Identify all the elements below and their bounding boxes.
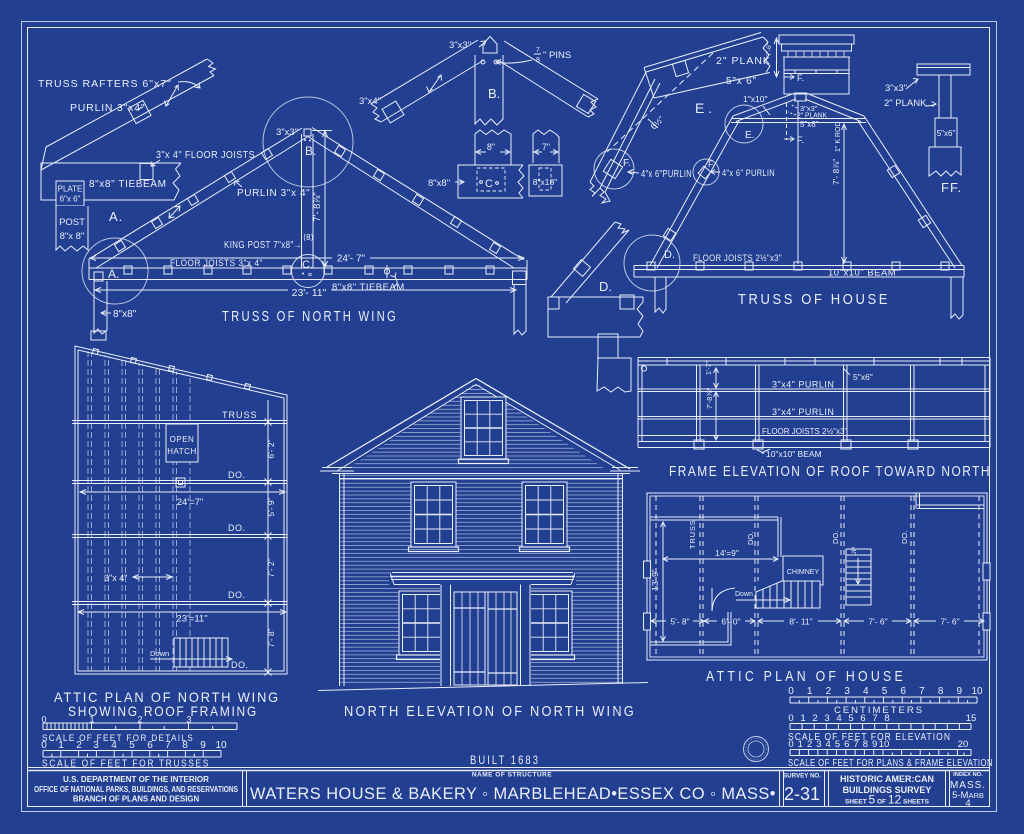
svg-text:4: 4	[836, 713, 841, 724]
svg-text:8"x8" TIEBEAM: 8"x8" TIEBEAM	[89, 179, 167, 190]
svg-text:2" PLANK: 2" PLANK	[884, 98, 927, 109]
svg-text:NAME OF STRUCTURE: NAME OF STRUCTURE	[472, 772, 553, 779]
svg-text:ATTIC PLAN OF HOUSE: ATTIC PLAN OF HOUSE	[706, 668, 906, 685]
svg-text:DO.: DO.	[746, 532, 755, 545]
svg-text:B.: B.	[488, 86, 500, 101]
svg-text:7": 7"	[542, 142, 550, 152]
svg-text:8: 8	[938, 686, 944, 697]
svg-text:6'- 2": 6'- 2"	[266, 439, 276, 458]
svg-text:8: 8	[863, 739, 868, 750]
svg-text:8: 8	[884, 713, 889, 724]
svg-text:3"x3": 3"x3"	[449, 40, 471, 51]
svg-text:3"x4": 3"x4"	[359, 96, 381, 107]
svg-text:1: 1	[800, 713, 805, 724]
svg-text:7'-6": 7'-6"	[766, 42, 773, 56]
svg-text:6"x 6": 6"x 6"	[60, 195, 81, 204]
svg-text:SURVEY NO.: SURVEY NO.	[783, 773, 821, 780]
svg-text:2: 2	[826, 686, 832, 697]
svg-text:8'- 11": 8'- 11"	[789, 617, 812, 627]
svg-text:6: 6	[900, 686, 906, 697]
svg-text:TRUSS: TRUSS	[222, 410, 258, 420]
svg-text:10: 10	[971, 686, 983, 697]
svg-text:Down: Down	[735, 591, 753, 598]
svg-text:1: 1	[798, 739, 803, 750]
svg-text:POST: POST	[59, 217, 85, 228]
svg-text:0: 0	[41, 740, 47, 751]
svg-text:Down: Down	[150, 649, 169, 658]
svg-text:8"x 8": 8"x 8"	[60, 231, 85, 242]
svg-text:D.: D.	[599, 279, 612, 294]
svg-text:4: 4	[826, 739, 831, 750]
svg-text:3: 3	[824, 713, 829, 724]
svg-text:24'- 7": 24'- 7"	[337, 254, 366, 265]
svg-text:PLATE: PLATE	[58, 185, 83, 194]
svg-text:5'- 9": 5'- 9"	[266, 497, 276, 516]
svg-text:FLOOR JOISTS 3"x 4": FLOOR JOISTS 3"x 4"	[170, 258, 263, 269]
svg-text:F.: F.	[797, 135, 804, 145]
svg-text:6'- 0": 6'- 0"	[721, 617, 740, 627]
svg-text:C.: C.	[302, 259, 313, 271]
svg-text:TRUSS: TRUSS	[688, 520, 697, 549]
svg-text:HISTORIC AMER:CAN: HISTORIC AMER:CAN	[840, 774, 934, 784]
svg-text:0: 0	[788, 713, 793, 724]
svg-text:TRUSS OF NORTH WING: TRUSS OF NORTH WING	[222, 308, 398, 325]
svg-text:24'=7": 24'=7"	[177, 497, 204, 508]
svg-text:7'- 8⅞": 7'- 8⅞"	[831, 159, 841, 185]
svg-text:OPEN: OPEN	[170, 435, 195, 444]
svg-text:7'-8⅞": 7'-8⅞"	[705, 387, 714, 409]
svg-text:CHIMNEY: CHIMNEY	[787, 569, 820, 576]
svg-text:SHOWING ROOF FRAMING: SHOWING ROOF FRAMING	[68, 703, 258, 719]
svg-text:F.: F.	[797, 73, 804, 83]
svg-text:⟨8⟩: ⟨8⟩	[303, 233, 314, 242]
svg-text:4"x 6"PURLIN: 4"x 6"PURLIN	[641, 169, 692, 180]
svg-text:INDEX NO.: INDEX NO.	[953, 772, 983, 778]
svg-text:5: 5	[848, 713, 853, 724]
svg-text:6: 6	[844, 739, 849, 750]
svg-text:DO.: DO.	[228, 470, 246, 480]
svg-text:NORTH ELEVATION OF NORTH W: NORTH ELEVATION OF NORTH WING	[344, 704, 636, 720]
svg-text:6: 6	[147, 740, 153, 751]
svg-text:C: C	[485, 178, 493, 190]
svg-text:D.: D.	[664, 249, 675, 261]
svg-text:20: 20	[958, 739, 969, 750]
svg-text:2" PLANK: 2" PLANK	[797, 113, 827, 120]
svg-text:8: 8	[182, 740, 188, 751]
svg-text:BRANCH OF PLANS AND DESIGN: BRANCH OF PLANS AND DESIGN	[73, 795, 200, 804]
svg-text:E.: E.	[745, 130, 754, 141]
svg-text:DO.: DO.	[900, 531, 909, 544]
svg-text:7: 7	[853, 739, 858, 750]
svg-text:2-31: 2-31	[784, 784, 820, 804]
svg-text:5"x6": 5"x6"	[937, 129, 956, 138]
svg-text:KING POST 7"x8"→: KING POST 7"x8"→	[224, 240, 302, 251]
svg-text:OFFICE OF NATIONAL PARKS, BUIL: OFFICE OF NATIONAL PARKS, BUILDINGS, AND…	[34, 785, 238, 794]
svg-text:DO.: DO.	[831, 531, 840, 544]
svg-text:4: 4	[965, 798, 970, 809]
svg-text:DO.: DO.	[228, 590, 246, 600]
svg-text:23'=11": 23'=11"	[176, 614, 207, 625]
svg-text:10: 10	[215, 740, 227, 751]
svg-text:10: 10	[879, 739, 890, 750]
svg-text:BUILT 1683: BUILT 1683	[470, 755, 540, 767]
svg-text:5: 5	[129, 740, 135, 751]
svg-text:4: 4	[863, 686, 869, 697]
svg-text:DO.: DO.	[231, 660, 249, 670]
svg-text:WATERS HOUSE & BAKERY ◦ MAR: WATERS HOUSE & BAKERY ◦ MARBLEHEAD•ESSEX…	[250, 785, 776, 803]
svg-text:DO.: DO.	[228, 523, 246, 533]
svg-text:TRUSS RAFTERS 6"x7": TRUSS RAFTERS 6"x7"	[38, 78, 172, 90]
svg-text:7: 7	[536, 47, 540, 54]
svg-text:3: 3	[93, 740, 99, 751]
svg-text:7'- 8⅞": 7'- 8⅞"	[312, 192, 323, 221]
svg-text:13'-9": 13'-9"	[650, 569, 660, 591]
svg-text:8"x8" TIEBEAM: 8"x8" TIEBEAM	[332, 282, 405, 293]
svg-text:FF.: FF.	[941, 180, 962, 195]
svg-text:FRAME ELEVATION OF ROOF TO: FRAME ELEVATION OF ROOF TOWARD NORTH	[669, 464, 991, 480]
svg-text:7: 7	[165, 740, 171, 751]
svg-text:U.S. DEPARTMENT OF THE INTERIO: U.S. DEPARTMENT OF THE INTERIOR	[63, 775, 209, 784]
svg-text:5: 5	[835, 739, 840, 750]
svg-text:3"x4" PURLIN: 3"x4" PURLIN	[772, 407, 834, 417]
svg-text:HATCH: HATCH	[167, 447, 196, 456]
svg-text:10"x10" BEAM: 10"x10" BEAM	[828, 268, 896, 279]
svg-text:3: 3	[816, 739, 821, 750]
svg-text:5"x6": 5"x6"	[853, 372, 873, 382]
svg-text:8"x8": 8"x8"	[428, 178, 450, 189]
svg-text:2: 2	[76, 740, 82, 751]
svg-text:15: 15	[966, 713, 977, 724]
svg-text:10"x10" BEAM: 10"x10" BEAM	[766, 449, 822, 459]
svg-text:8"x8": 8"x8"	[113, 309, 137, 320]
svg-text:14'=9": 14'=9"	[715, 548, 739, 558]
svg-text:0: 0	[41, 715, 46, 725]
svg-text:8: 8	[536, 57, 540, 64]
svg-text:1: 1	[807, 686, 813, 697]
svg-text:FLOOR JOISTS 2½"x3": FLOOR JOISTS 2½"x3"	[693, 253, 782, 264]
svg-text:2: 2	[807, 739, 812, 750]
svg-text:PURLIN 3"x 4": PURLIN 3"x 4"	[237, 188, 310, 199]
svg-text:SCALE OF FEET FOR DETAILS: SCALE OF FEET FOR DETAILS	[42, 733, 194, 744]
svg-text:2: 2	[812, 713, 817, 724]
svg-text:TRUSS OF HOUSE: TRUSS OF HOUSE	[738, 291, 890, 308]
svg-text:UP: UP	[851, 547, 858, 556]
svg-text:B.: B.	[305, 144, 316, 158]
svg-text:F.: F.	[708, 159, 715, 169]
svg-text:4"x 6" PURLIN: 4"x 6" PURLIN	[722, 168, 775, 179]
svg-text:3"x3": 3"x3"	[276, 127, 298, 138]
svg-text:7'- 6": 7'- 6"	[940, 617, 959, 627]
svg-text:9: 9	[872, 739, 877, 750]
svg-text:5"x6": 5"x6"	[800, 120, 819, 129]
svg-text:" PINS: " PINS	[543, 50, 571, 61]
svg-text:7: 7	[919, 686, 925, 697]
svg-text:5"x 6": 5"x 6"	[726, 76, 757, 87]
svg-text:23'- 11": 23'- 11"	[292, 287, 327, 299]
svg-text:3"x 4": 3"x 4"	[104, 573, 127, 583]
svg-text:4: 4	[111, 740, 117, 751]
svg-text:0: 0	[788, 739, 793, 750]
svg-text:A.: A.	[109, 209, 123, 224]
svg-text:1" K ROD: 1" K ROD	[835, 122, 842, 153]
svg-text:7'- 6": 7'- 6"	[868, 617, 887, 627]
svg-text:8": 8"	[487, 142, 495, 152]
svg-text:7: 7	[872, 713, 877, 724]
svg-text:5'- 8": 5'- 8"	[670, 617, 689, 627]
svg-text:1: 1	[58, 740, 64, 751]
svg-text:9: 9	[957, 686, 963, 697]
svg-text:3"x4" PURLIN: 3"x4" PURLIN	[772, 380, 834, 390]
svg-text:5: 5	[882, 686, 888, 697]
svg-text:7'- 2": 7'- 2"	[266, 558, 276, 577]
svg-text:1'-7": 1'-7"	[706, 361, 713, 375]
svg-text:3"x 4" FLOOR JOISTS: 3"x 4" FLOOR JOISTS	[156, 150, 255, 161]
svg-text:1"x10": 1"x10"	[743, 94, 767, 104]
svg-text:A.: A.	[108, 267, 119, 281]
svg-text:8"x18": 8"x18"	[533, 177, 557, 187]
svg-text:2" PLANK: 2" PLANK	[716, 55, 771, 67]
svg-text:SCALE OF FEET FOR ELEVATION: SCALE OF FEET FOR ELEVATION	[788, 732, 951, 743]
svg-text:PURLIN 3"x4": PURLIN 3"x4"	[70, 102, 145, 114]
svg-text:9: 9	[200, 740, 206, 751]
svg-text:E .: E .	[695, 100, 712, 116]
svg-text:0: 0	[788, 686, 794, 697]
svg-text:3"x3": 3"x3"	[885, 83, 907, 94]
svg-text:3: 3	[844, 686, 850, 697]
svg-text:FLOOR JOISTS 2½"x3": FLOOR JOISTS 2½"x3"	[762, 427, 847, 436]
svg-text:F.: F.	[623, 158, 631, 169]
svg-text:7'- 8": 7'- 8"	[266, 628, 276, 647]
svg-text:6: 6	[860, 713, 865, 724]
